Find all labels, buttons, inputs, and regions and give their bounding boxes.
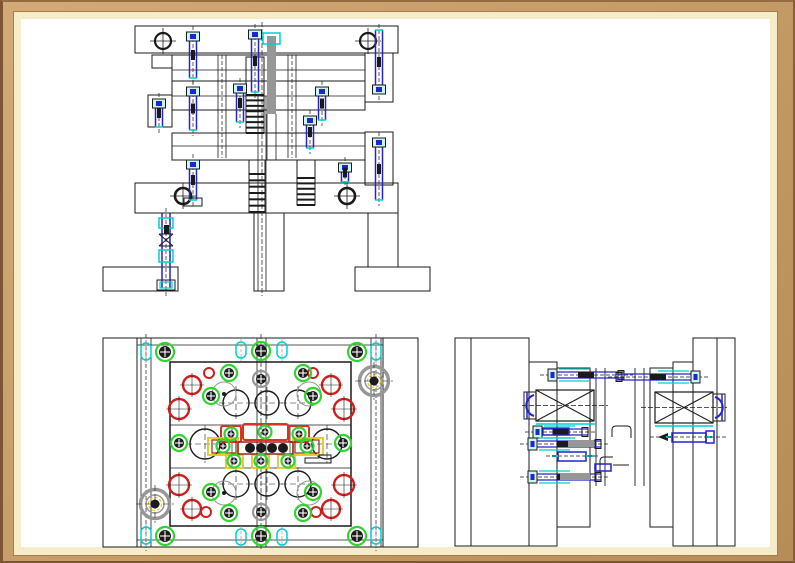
cad-drawing-window	[0, 0, 795, 563]
mold-assembly-drawing-canvas	[0, 0, 795, 563]
plan-view	[103, 334, 418, 551]
side-section-view	[455, 338, 735, 546]
front-section-view	[103, 22, 430, 296]
